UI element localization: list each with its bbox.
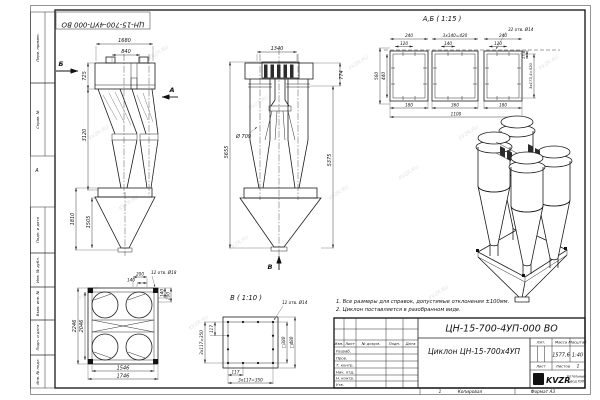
iso-3d-view — [476, 116, 572, 302]
col-podp: Подп. — [389, 341, 401, 346]
footer-num: 1 — [439, 389, 442, 395]
margin-label-perv-primen: Перв. примен. — [35, 33, 40, 62]
dim-200-r: 200 — [166, 292, 171, 300]
watermark: KVZR.RU — [328, 184, 350, 201]
margin-label-inv-dubl: Инв. № дубл. — [35, 257, 40, 283]
margin-label-sprav-no: Справ. № — [35, 110, 40, 129]
bolt-holes — [227, 321, 274, 364]
dim-180-l: 180 — [405, 103, 413, 108]
view-arrow-label-v: В — [268, 263, 273, 271]
dim-120-l: 120 — [400, 41, 408, 46]
dim-360: 360 — [451, 103, 459, 108]
dim-2246: 2246 — [72, 320, 78, 333]
margin-label-podp-data2: Подп. и дата — [35, 324, 40, 351]
col-doc: № докум. — [361, 341, 381, 346]
dim-3x117-b: 3х117=350 — [238, 378, 263, 383]
row-n-kontr: Н. контр. — [336, 376, 354, 381]
dim-840: 840 — [121, 49, 131, 55]
dim-117-l: 117 — [209, 325, 214, 333]
margin-column: Перв. примен. Справ. № А Подп. и дата Ин… — [31, 12, 56, 388]
dim-140-r: 140 — [160, 289, 165, 297]
watermark: KVZR.RU — [398, 164, 420, 181]
row-nach: Нач. отд. — [336, 370, 354, 375]
drawing-canvas: KVZR.RU KVZR.RU KVZR.RU KVZR.RU KVZR.RU … — [0, 0, 600, 400]
dim-5375: 5375 — [327, 154, 333, 167]
dim-1505: 1505 — [86, 216, 92, 229]
row-t-kontr: Т. контр. — [336, 363, 354, 368]
col-data: Дата — [405, 341, 417, 346]
dim-560: 560 — [374, 72, 379, 80]
company-logo: ≋ KVZR Котельный завод РЭП — [533, 373, 586, 385]
dim-3x140: 3х140=420 — [443, 33, 468, 38]
dim-1100: 1100 — [451, 112, 462, 117]
mass-value: 1577,6 — [552, 353, 570, 359]
holes-label-32: 32 отв. Ø14 — [508, 27, 534, 32]
notes: 1. Все размеры для справок, допустимые о… — [336, 299, 509, 313]
watermark: KVZR.RU — [248, 94, 270, 111]
dim-sq480: □480 — [289, 336, 294, 348]
watermark: KVZR.RU — [228, 234, 250, 251]
title-block: Изм. Лист № докум. Подп. Дата Разраб. Пр… — [334, 318, 587, 388]
dim-178: 17,8 — [522, 50, 526, 59]
margin-label-vzam-inv: Взам. инв. № — [35, 291, 40, 317]
section-arrow-label-a: А — [168, 86, 174, 94]
watermark: KVZR.RU — [538, 54, 560, 71]
top-view: 2246 2046 1546 1746 200 140 12 отв. Ø18 … — [72, 270, 177, 380]
dim-240-l: 240 — [405, 33, 413, 38]
product-name: Циклон ЦН-15-700х4УП — [428, 347, 520, 356]
front-view: 1680 840 725 3120 1810 1505 Б А — [56, 38, 178, 256]
section-ab-title: А,Б ( 1:15 ) — [422, 15, 462, 23]
holes-label-12-14: 12 отв. Ø14 — [282, 300, 308, 305]
sheet-footer: 1 Копировал Формат А3 — [420, 388, 555, 395]
scale-label: Масштаб — [568, 340, 587, 345]
zone-marker: А — [34, 168, 39, 174]
dim-440: 440 — [381, 72, 386, 80]
stamp-doc-number: ЦН-15-700-4УП-000 ВО — [61, 21, 144, 29]
dim-3120: 3120 — [82, 129, 88, 142]
section-arrow-label-b: Б — [59, 60, 64, 68]
note-1: 1. Все размеры для справок, допустимые о… — [336, 299, 509, 305]
dim-1546: 1546 — [117, 366, 130, 372]
dim-3x173: 3х173,4=520 — [528, 62, 533, 89]
logo-caption-2: завод РЭП — [567, 380, 585, 384]
note-2: 2. Циклон поставляется в разобранном вид… — [336, 307, 461, 313]
watermark: KVZR.RU — [148, 44, 170, 61]
scale-value: 1:40 — [572, 353, 583, 359]
dim-774: 774 — [339, 70, 345, 80]
dim-200-t: 200 — [136, 272, 144, 277]
lit-label: Лит. — [536, 340, 546, 345]
doc-number: ЦН-15-700-4УП-000 ВО — [445, 324, 558, 335]
dim-sq380: □380 — [281, 336, 286, 348]
row-prov: Пров. — [336, 356, 347, 361]
margin-label-podp-data: Подп. и дата — [35, 216, 40, 243]
dim-725: 725 — [82, 71, 88, 81]
dim-5655: 5655 — [224, 146, 230, 159]
holes-label-12-18: 12 отв. Ø18 — [151, 270, 177, 275]
dim-140-t: 140 — [127, 278, 135, 283]
list-label: Лист — [535, 364, 546, 369]
watermark: KVZR.RU — [348, 54, 370, 71]
dim-1746: 1746 — [117, 374, 130, 380]
listov-value: 1 — [577, 364, 580, 370]
dim-2046: 2046 — [79, 320, 85, 333]
dim-3x117-l: 3х117=350 — [199, 330, 204, 355]
dim-117-b: 117 — [232, 370, 240, 375]
top-left-stamp: ЦН-15-700-4УП-000 ВО — [56, 12, 150, 29]
dim-1340: 1340 — [271, 46, 284, 52]
col-list: Лист — [344, 341, 355, 346]
watermark: KVZR.RU — [188, 314, 210, 331]
logo-wave-icon: ≋ — [535, 375, 542, 384]
row-utv: Утв. — [336, 382, 344, 387]
dim-dia-709: Ø 709 — [235, 133, 251, 140]
section-ab-view: А,Б ( 1:15 ) 240 3х140=420 240 120 140 1… — [374, 15, 560, 118]
flange-b-title: В ( 1:10 ) — [230, 294, 262, 302]
dim-240-r: 240 — [499, 33, 507, 38]
col-izm: Изм. — [335, 341, 344, 346]
dim-180-r: 180 — [499, 103, 507, 108]
dim-1810: 1810 — [70, 213, 76, 226]
margin-label-inv-podl: Инв. № подл. — [35, 358, 40, 384]
watermark: KVZR.RU — [88, 124, 110, 141]
watermark: KVZR.RU — [458, 124, 480, 141]
listov-label: Листов — [555, 364, 571, 369]
footer-copy: Копировал — [458, 389, 483, 395]
flange-b-view: В ( 1:10 ) 12 отв. Ø14 3х117=350 117 117… — [199, 294, 308, 384]
mass-label: Масса — [555, 340, 568, 345]
footer-format: Формат А3 — [531, 389, 556, 395]
dim-140: 140 — [444, 41, 452, 46]
logo-caption-1: Котельный — [567, 375, 586, 379]
dim-1680: 1680 — [118, 38, 131, 44]
row-razrab: Разраб. — [336, 349, 351, 354]
